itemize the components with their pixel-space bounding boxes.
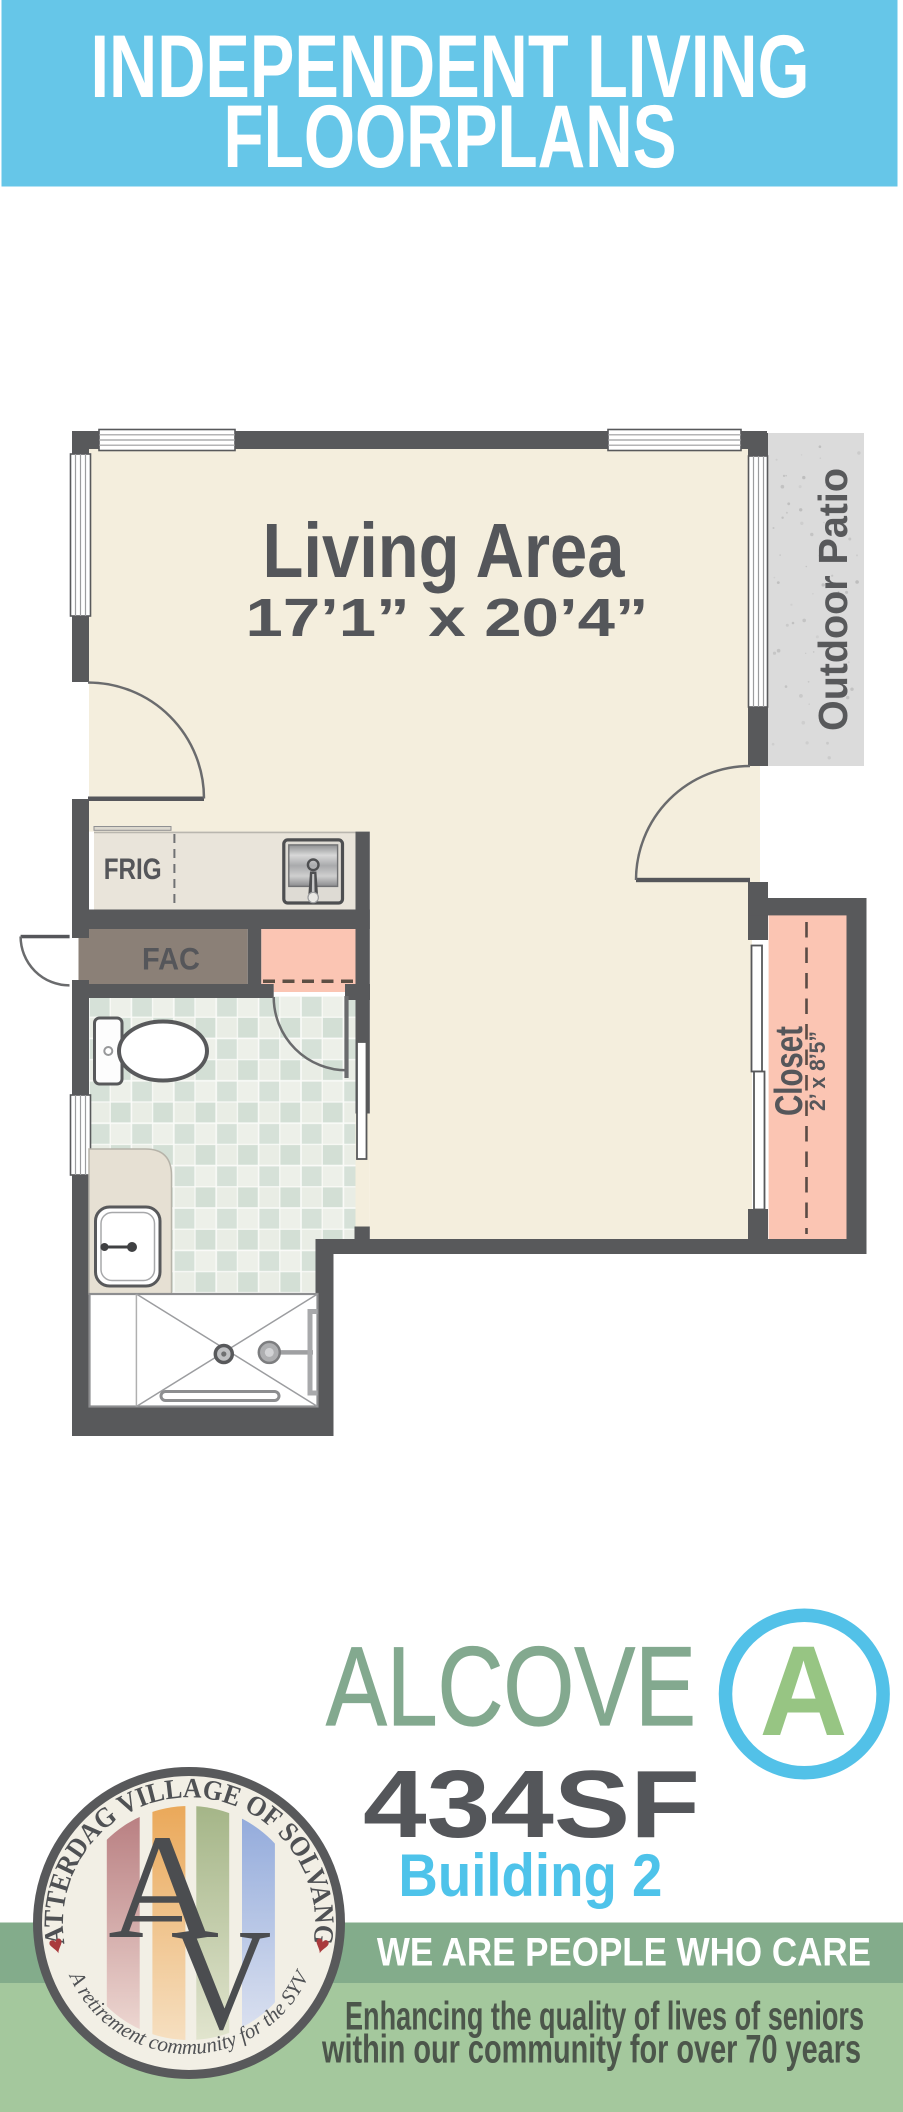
svg-text:FLOORPLANS: FLOORPLANS bbox=[224, 86, 677, 186]
svg-text:Building 2: Building 2 bbox=[398, 1841, 662, 1909]
svg-text:ALCOVE: ALCOVE bbox=[326, 1623, 696, 1749]
svg-text:Outdoor Patio: Outdoor Patio bbox=[810, 468, 856, 731]
svg-text:WE ARE PEOPLE WHO CARE: WE ARE PEOPLE WHO CARE bbox=[377, 1930, 871, 1974]
svg-text:Living Area: Living Area bbox=[263, 508, 626, 594]
svg-text:2’ x 8’5”: 2’ x 8’5” bbox=[805, 1031, 830, 1111]
svg-text:FAC: FAC bbox=[142, 941, 200, 977]
svg-text:within our community for over: within our community for over 70 years bbox=[321, 2028, 861, 2072]
svg-text:17’1” x 20’4”: 17’1” x 20’4” bbox=[246, 588, 649, 648]
svg-text:A: A bbox=[760, 1620, 848, 1763]
svg-text:FRIG: FRIG bbox=[104, 853, 162, 886]
